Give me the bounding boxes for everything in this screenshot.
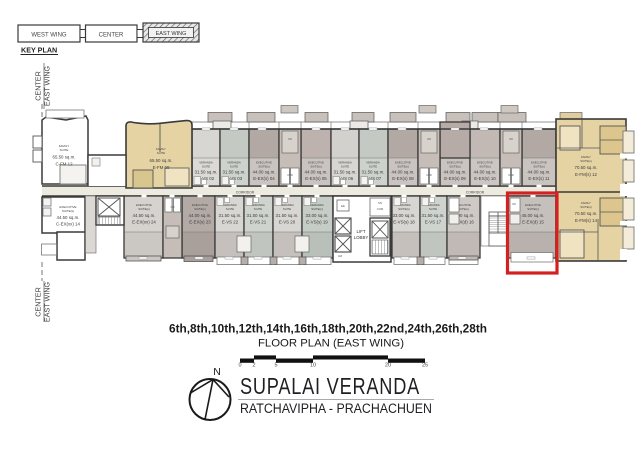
- svg-text:31.50 sq.m.: 31.50 sq.m.: [247, 213, 270, 218]
- svg-text:E-FM(s) 12: E-FM(s) 12: [575, 172, 598, 177]
- svg-text:70.50 sq.m.: 70.50 sq.m.: [575, 211, 598, 216]
- svg-text:E-VS 22: E-VS 22: [222, 220, 239, 225]
- svg-text:LIFT: LIFT: [356, 229, 365, 234]
- svg-text:2: 2: [252, 363, 255, 369]
- svg-text:SUITE(s): SUITE(s): [580, 205, 592, 209]
- svg-text:E-EX(s) 04: E-EX(s) 04: [253, 176, 275, 181]
- svg-text:SUITE(s): SUITE(s): [194, 207, 206, 211]
- svg-text:31.50 sq.m.: 31.50 sq.m.: [362, 170, 385, 175]
- svg-text:G8: G8: [338, 254, 342, 258]
- svg-text:E-VS(s) 18: E-VS(s) 18: [393, 220, 415, 225]
- svg-text:SUITE: SUITE: [369, 165, 377, 169]
- svg-text:25: 25: [422, 363, 428, 369]
- svg-text:CCD: CCD: [287, 173, 293, 177]
- svg-text:33.00 sq.m.: 33.00 sq.m.: [393, 213, 416, 218]
- svg-text:SUITE: SUITE: [283, 207, 291, 211]
- svg-text:SUITE: SUITE: [60, 148, 69, 152]
- svg-text:E-EX(s) 05: E-EX(s) 05: [305, 176, 327, 181]
- svg-text:44.50 sq.m.: 44.50 sq.m.: [133, 213, 156, 218]
- svg-text:E-VS 21: E-VS 21: [250, 220, 267, 225]
- svg-text:E-FM 09: E-FM 09: [153, 165, 170, 170]
- svg-text:WEST WING: WEST WING: [31, 33, 67, 39]
- svg-text:E-EX(xx) 24: E-EX(xx) 24: [132, 220, 156, 225]
- svg-text:SUITE(s): SUITE(s): [527, 207, 539, 211]
- svg-text:COM: COM: [377, 207, 384, 211]
- svg-text:44.00 sq.m.: 44.00 sq.m.: [189, 213, 212, 218]
- svg-text:FLOOR PLAN (EAST WING): FLOOR PLAN (EAST WING): [258, 338, 404, 350]
- svg-text:CENTER: CENTER: [99, 33, 124, 39]
- svg-text:SUITE: SUITE: [341, 165, 349, 169]
- svg-text:44.00 sq.m.: 44.00 sq.m.: [305, 170, 328, 175]
- svg-text:SUITE(s): SUITE(s): [533, 165, 545, 169]
- svg-text:C-EX(xx) 14: C-EX(xx) 14: [56, 222, 80, 227]
- svg-text:E-EX(s) 08: E-EX(s) 08: [392, 176, 414, 181]
- svg-text:CCD: CCD: [508, 173, 514, 177]
- svg-text:SUITE: SUITE: [226, 207, 234, 211]
- svg-text:RATCHAVIPHA - PRACHACHUEN: RATCHAVIPHA - PRACHACHUEN: [240, 401, 432, 416]
- svg-text:E-EX(s) 09: E-EX(s) 09: [444, 176, 466, 181]
- svg-text:31.50 sq.m.: 31.50 sq.m.: [223, 170, 246, 175]
- svg-text:CCD: CCD: [426, 173, 432, 177]
- svg-text:LOBBY: LOBBY: [354, 235, 369, 240]
- svg-text:SUITE(s): SUITE(s): [397, 165, 409, 169]
- svg-text:E-VS 17: E-VS 17: [425, 220, 442, 225]
- svg-text:SUITE(s): SUITE(s): [479, 165, 491, 169]
- svg-text:SUPALAI VERANDA: SUPALAI VERANDA: [240, 373, 420, 399]
- svg-text:31.50 sq.m.: 31.50 sq.m.: [334, 170, 357, 175]
- svg-text:SUITE(s): SUITE(s): [449, 165, 461, 169]
- svg-text:0: 0: [238, 363, 241, 369]
- svg-text:CORRIDOR: CORRIDOR: [466, 191, 485, 195]
- svg-text:N: N: [213, 366, 221, 378]
- svg-text:44.00 sq.m.: 44.00 sq.m.: [474, 170, 497, 175]
- svg-text:44.00 sq.m.: 44.00 sq.m.: [253, 170, 276, 175]
- svg-text:6th,8th,10th,12th,14th,16th,18: 6th,8th,10th,12th,14th,16th,18th,20th,22…: [169, 324, 487, 336]
- svg-text:65.50 sq.m.: 65.50 sq.m.: [53, 155, 76, 160]
- svg-text:SUITE(s): SUITE(s): [310, 165, 322, 169]
- svg-text:65.50 sq.m.: 65.50 sq.m.: [150, 158, 173, 163]
- svg-text:SUITE: SUITE: [230, 165, 238, 169]
- svg-text:CENTER: CENTER: [34, 71, 43, 101]
- svg-text:31.50 sq.m.: 31.50 sq.m.: [195, 170, 218, 175]
- svg-text:KEY PLAN: KEY PLAN: [21, 46, 57, 55]
- svg-text:10: 10: [310, 363, 316, 369]
- svg-text:SUITE(s): SUITE(s): [258, 165, 270, 169]
- svg-text:45.00 sq.m.: 45.00 sq.m.: [522, 213, 545, 218]
- svg-text:44.00 sq.m.: 44.00 sq.m.: [444, 170, 467, 175]
- svg-text:CORRIDOR: CORRIDOR: [236, 191, 255, 195]
- svg-text:E-EX(s) 23: E-EX(s) 23: [189, 220, 211, 225]
- svg-text:31.50 sq.m.: 31.50 sq.m.: [422, 213, 445, 218]
- svg-text:C-FM 12: C-FM 12: [55, 162, 73, 167]
- svg-text:SUITE(s): SUITE(s): [398, 207, 410, 211]
- svg-text:SUITE: SUITE: [202, 165, 210, 169]
- svg-text:SUITE(s): SUITE(s): [138, 207, 150, 211]
- svg-text:OD: OD: [171, 205, 175, 209]
- svg-text:SUITE(s): SUITE(s): [62, 209, 74, 213]
- svg-text:E-FM(s) 14: E-FM(s) 14: [575, 218, 598, 223]
- svg-text:44.00 sq.m.: 44.00 sq.m.: [528, 170, 551, 175]
- svg-text:EAST WING: EAST WING: [156, 31, 187, 37]
- svg-text:OD: OD: [288, 137, 292, 141]
- svg-text:20: 20: [385, 363, 391, 369]
- svg-text:E-VS(s) 19: E-VS(s) 19: [306, 220, 328, 225]
- svg-text:EE: EE: [341, 204, 345, 208]
- svg-text:SUITE: SUITE: [429, 207, 437, 211]
- svg-text:SUITE: SUITE: [157, 151, 165, 155]
- svg-text:CENTER: CENTER: [34, 287, 43, 317]
- svg-text:44.50 sq.m.: 44.50 sq.m.: [57, 215, 80, 220]
- svg-text:E-EX(s) 10: E-EX(s) 10: [474, 176, 496, 181]
- svg-text:70.50 sq.m.: 70.50 sq.m.: [575, 165, 598, 170]
- svg-text:OD: OD: [427, 137, 431, 141]
- svg-text:31.50 sq.m.: 31.50 sq.m.: [276, 213, 299, 218]
- svg-text:E-EX(s) 11: E-EX(s) 11: [528, 176, 550, 181]
- svg-text:SUITE(s): SUITE(s): [580, 159, 592, 163]
- svg-text:E-EX(d) 15: E-EX(d) 15: [522, 220, 544, 225]
- svg-text:SN: SN: [378, 201, 382, 205]
- svg-text:SUITE(s): SUITE(s): [311, 207, 323, 211]
- svg-text:44.00 sq.m.: 44.00 sq.m.: [392, 170, 415, 175]
- svg-text:31.50 sq.m.: 31.50 sq.m.: [219, 213, 242, 218]
- svg-text:5: 5: [274, 363, 277, 369]
- svg-text:OD: OD: [509, 137, 513, 141]
- svg-text:33.00 sq.m.: 33.00 sq.m.: [306, 213, 329, 218]
- svg-text:OD: OD: [512, 203, 516, 206]
- svg-text:SUITE: SUITE: [254, 207, 262, 211]
- svg-text:E-VS 20: E-VS 20: [279, 220, 296, 225]
